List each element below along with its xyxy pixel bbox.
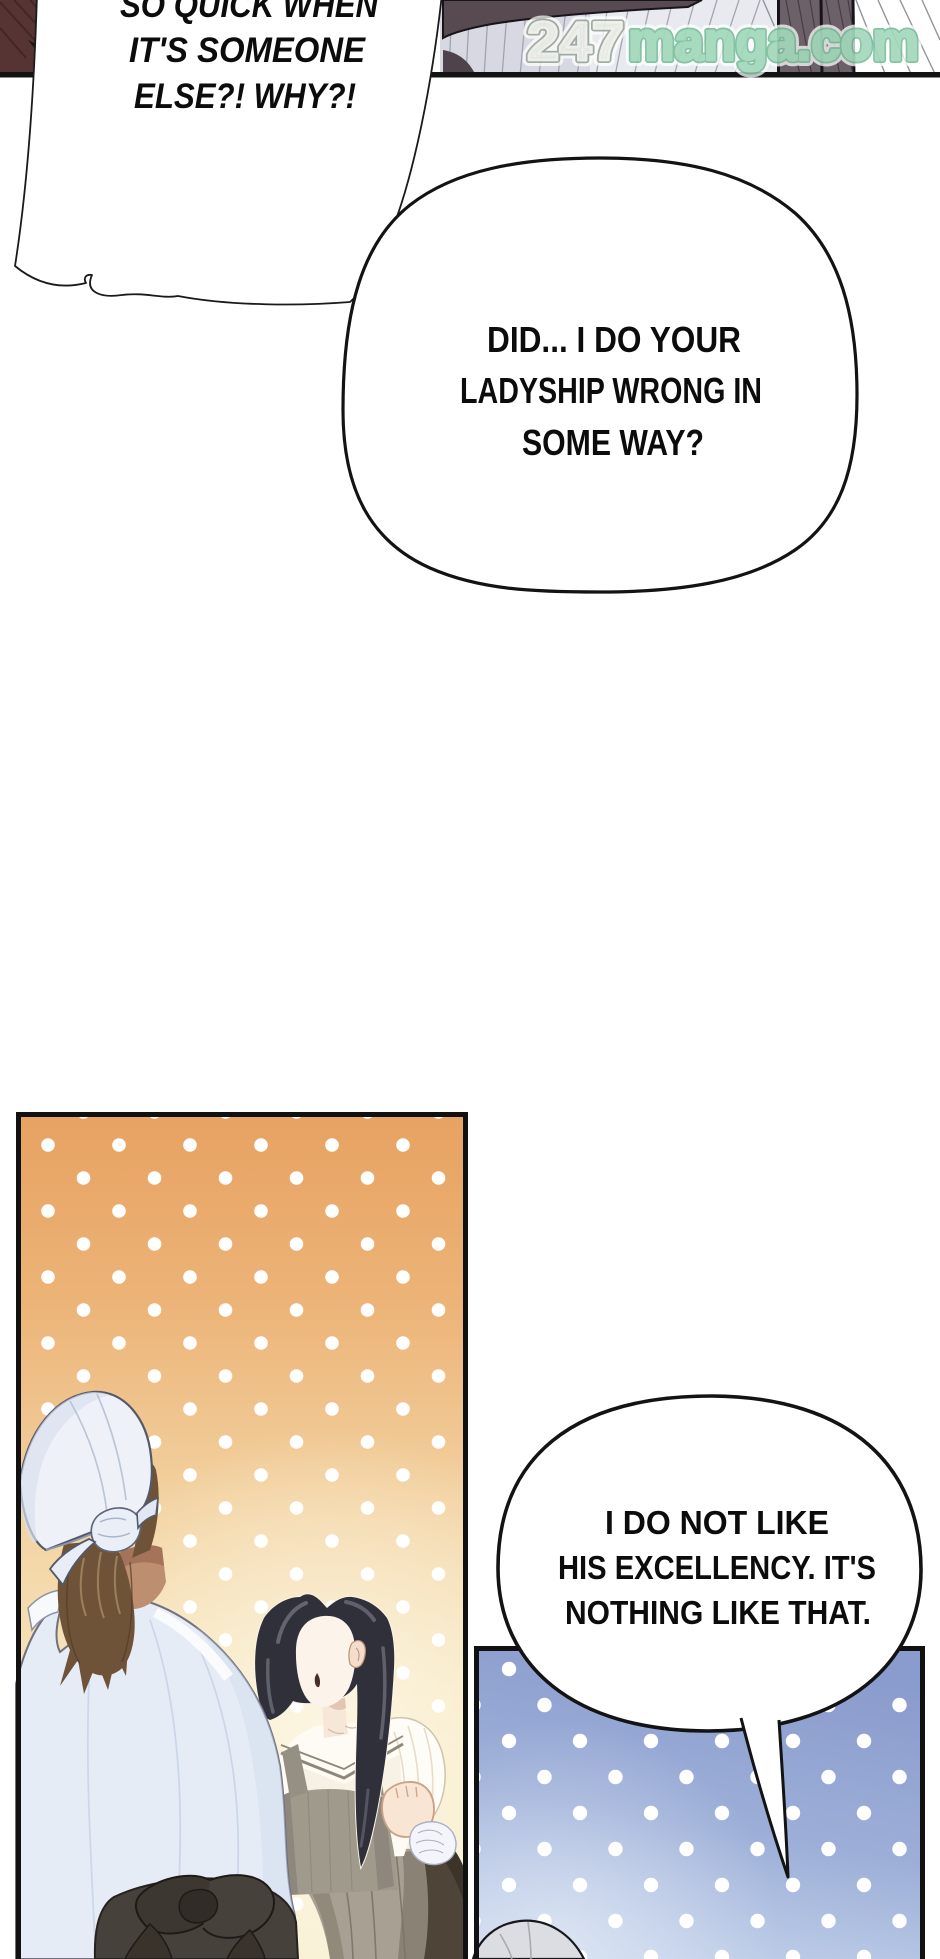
svg-text:ELSE?! WHY?!: ELSE?! WHY?! [134, 77, 356, 116]
svg-text:NOTHING LIKE THAT.: NOTHING LIKE THAT. [565, 1594, 871, 1631]
svg-text:IT'S SOMEONE: IT'S SOMEONE [129, 31, 367, 70]
svg-text:DID... I DO YOUR: DID... I DO YOUR [487, 319, 741, 360]
svg-text:247: 247 [527, 10, 624, 72]
svg-text:SO QUICK WHEN: SO QUICK WHEN [120, 0, 379, 25]
svg-text:I DO NOT LIKE: I DO NOT LIKE [605, 1504, 829, 1541]
svg-text:SOME WAY?: SOME WAY? [522, 422, 704, 463]
svg-text:HIS EXCELLENCY. IT'S: HIS EXCELLENCY. IT'S [558, 1549, 876, 1586]
svg-text:LADYSHIP WRONG IN: LADYSHIP WRONG IN [460, 370, 762, 411]
svg-text:manga.com: manga.com [628, 10, 919, 72]
